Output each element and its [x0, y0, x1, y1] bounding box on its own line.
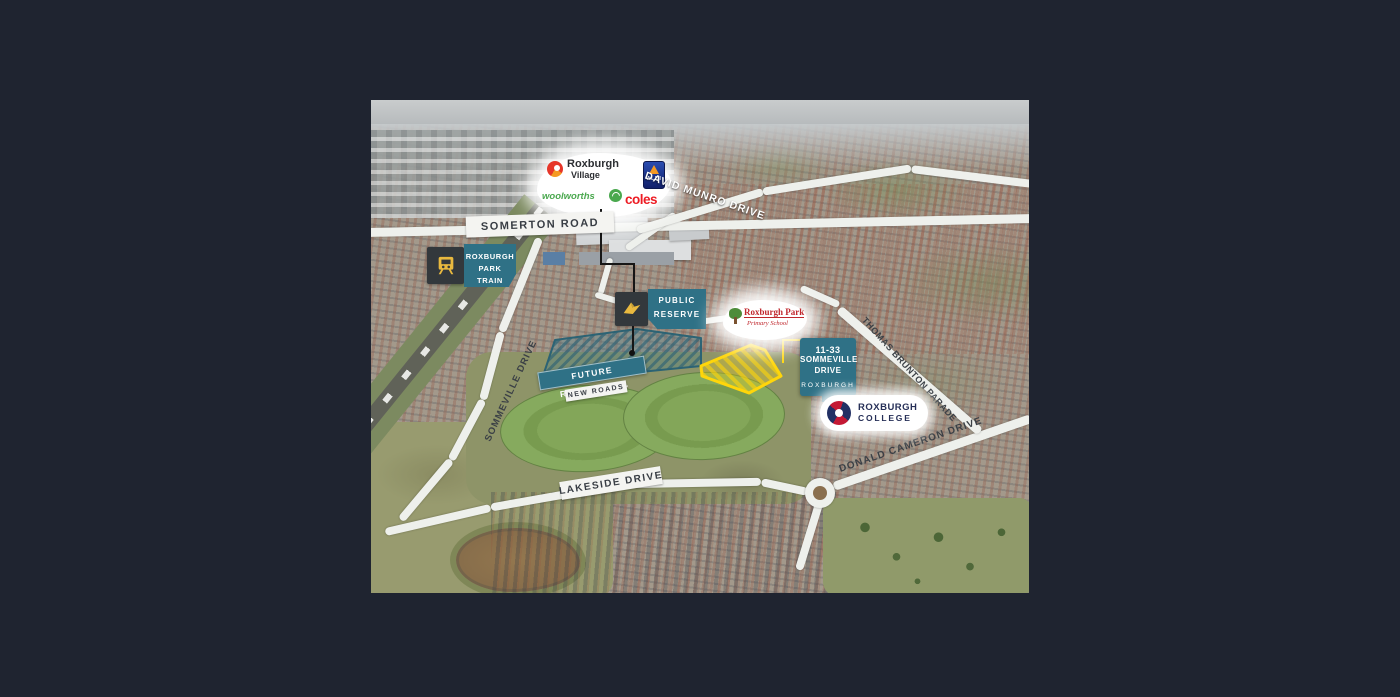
- college-name: ROXBURGH COLLEGE: [858, 402, 917, 424]
- coles-wordmark: coles: [625, 192, 657, 207]
- woolworths-apple-icon: [609, 189, 622, 202]
- reserve-callout-dot: [629, 350, 635, 356]
- mall-callout-line: [600, 263, 635, 265]
- suburb-rooftops-bottom: [491, 492, 841, 593]
- reserve-callout-line: [632, 326, 634, 352]
- page-background: Roxburgh Village ALDI woolworths coles S…: [0, 0, 1400, 697]
- roundabout-centre: [813, 486, 827, 500]
- roxburgh-village-sub: Village: [571, 170, 600, 180]
- station-building: [543, 252, 565, 265]
- aerial-photo: Roxburgh Village ALDI woolworths coles S…: [371, 100, 1029, 593]
- train-station-badge: ROXBURGH PARK TRAIN STATION: [464, 244, 516, 287]
- train-station-line1: ROXBURGH PARK: [464, 251, 516, 275]
- tree-trunk-icon: [734, 317, 737, 324]
- train-station-icon-box: [427, 247, 464, 284]
- site-line4: ROXBURGH: [800, 382, 856, 389]
- public-reserve-badge: PUBLIC RESERVE: [648, 289, 706, 329]
- public-reserve-line1: PUBLIC: [648, 294, 706, 308]
- roxburgh-village-swirl-icon: [547, 161, 563, 177]
- train-icon: [435, 255, 457, 277]
- college-line1: ROXBURGH: [858, 402, 917, 413]
- woolworths-wordmark: woolworths: [542, 191, 595, 202]
- site-address-badge: 11-33 SOMMEVILLE DRIVE ROXBURGH: [800, 338, 856, 396]
- site-line1: 11-33: [800, 345, 856, 355]
- bird-icon: [622, 299, 642, 319]
- roxburgh-village-name: Roxburgh: [567, 158, 619, 170]
- site-line2: SOMMEVILLE: [800, 355, 856, 366]
- primary-school-sub: Primary School: [747, 320, 788, 327]
- public-reserve-line2: RESERVE: [648, 308, 706, 322]
- college-crest-icon: [827, 401, 851, 425]
- public-reserve-icon-box: [615, 292, 648, 326]
- site-callout-line: [782, 339, 784, 363]
- primary-school-name: Roxburgh Park: [744, 307, 804, 318]
- college-badge: ROXBURGH COLLEGE: [820, 395, 928, 431]
- college-line2: COLLEGE: [858, 413, 917, 423]
- reserve-field-east: [823, 498, 1029, 593]
- site-boundary-highlight: [699, 342, 783, 396]
- site-line3: DRIVE: [800, 366, 856, 377]
